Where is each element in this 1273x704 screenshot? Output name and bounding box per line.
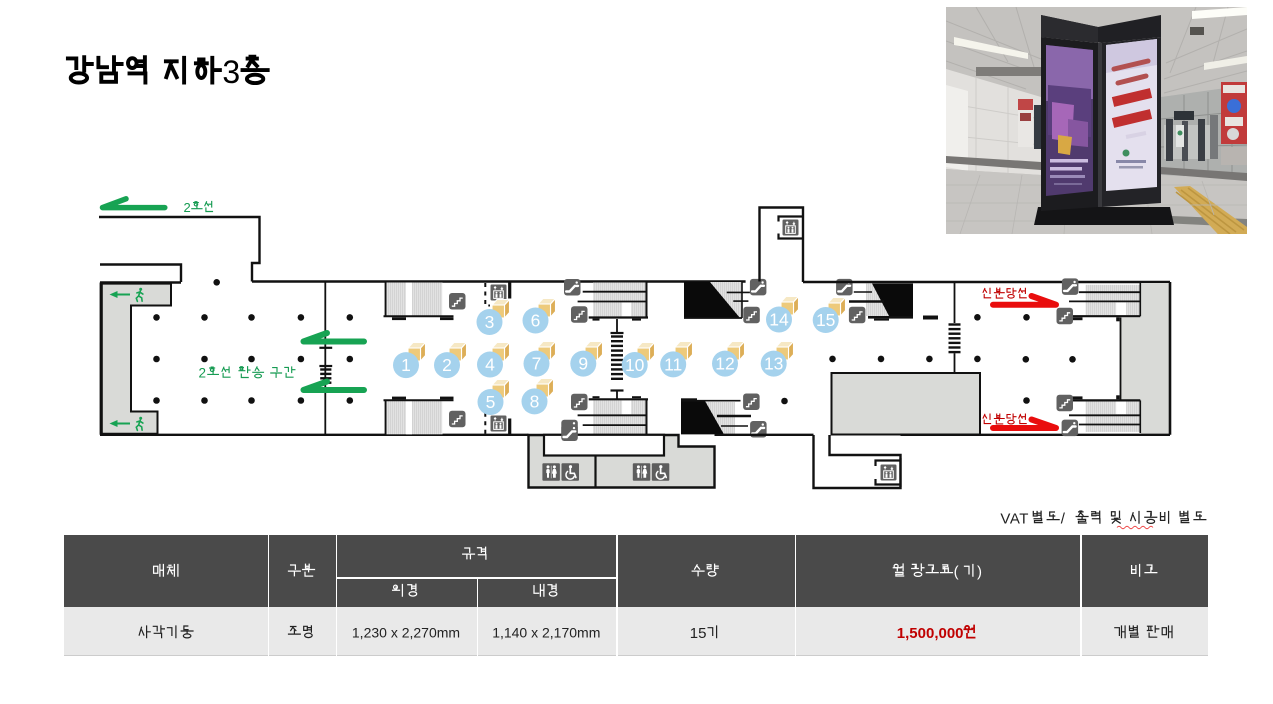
svg-text:1,140 x 2,170mm: 1,140 x 2,170mm	[492, 624, 600, 640]
svg-text:15: 15	[690, 625, 707, 642]
svg-text:1,230 x 2,270mm: 1,230 x 2,270mm	[352, 624, 460, 640]
svg-text:(: (	[954, 563, 959, 580]
svg-text:/: /	[1061, 510, 1066, 527]
svg-text:1,500,000: 1,500,000	[897, 625, 964, 642]
svg-text:): )	[977, 563, 982, 580]
svg-text:VAT: VAT	[1000, 510, 1029, 527]
